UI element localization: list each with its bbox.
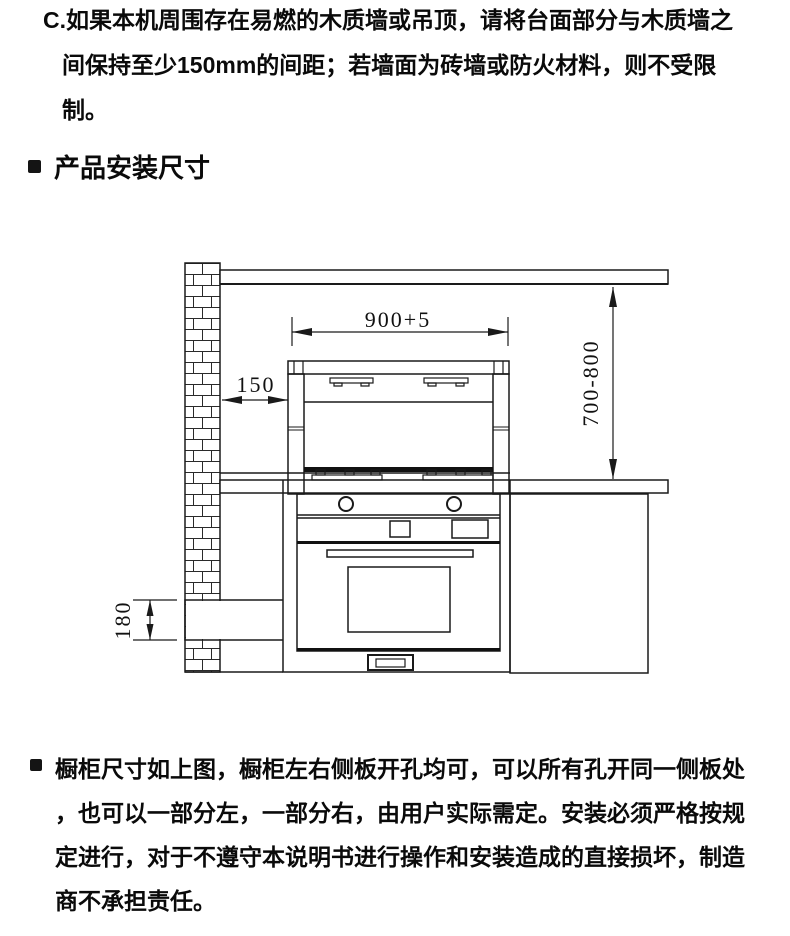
oven-door-handle	[327, 550, 473, 557]
dim-base-height-label: 180	[110, 601, 135, 640]
intro-line-2: 间保持至少150mm的间距；若墙面为砖墙或防火材料，则不受限	[0, 43, 790, 88]
footer-paragraph: 橱柜尺寸如上图，橱柜左右侧板开孔均可，可以所有孔开同一侧板处 ，也可以一部分左，…	[0, 747, 790, 923]
square-bullet-icon	[28, 160, 41, 173]
hood-vent-slots	[330, 378, 468, 386]
dim-wall-gap-label: 150	[237, 372, 276, 397]
section-heading-label: 产品安装尺寸	[54, 148, 210, 185]
dimension-width: 900+5	[292, 307, 508, 346]
dim-width-label: 900+5	[365, 307, 431, 332]
intro-line-1: C.如果本机周围存在易燃的木质墙或吊顶，请将台面部分与木质墙之	[0, 0, 790, 43]
display-window-large	[452, 520, 488, 538]
intro-paragraph: C.如果本机周围存在易燃的木质墙或吊顶，请将台面部分与木质墙之 间保持至少150…	[0, 0, 790, 133]
control-knob-left	[339, 497, 353, 511]
upper-cabinet-panel	[220, 270, 668, 284]
hood-unit	[288, 361, 509, 494]
square-bullet-icon	[30, 759, 42, 771]
section-heading: 产品安装尺寸	[28, 148, 210, 185]
dimension-wall-gap: 150	[222, 372, 288, 404]
installation-dimensions-drawing: 900+5 150 700-800 180	[0, 230, 790, 710]
intro-line-3: 制。	[0, 88, 790, 133]
right-base-cabinet	[510, 494, 648, 673]
lower-oven-cabinet	[283, 480, 510, 672]
dimension-height: 700-800	[578, 287, 617, 479]
control-knob-right	[447, 497, 461, 511]
footer-line-1: 橱柜尺寸如上图，橱柜左右侧板开孔均可，可以所有孔开同一侧板处	[0, 747, 790, 791]
dimension-base-height: 180	[110, 600, 177, 640]
dim-height-label: 700-800	[578, 339, 603, 426]
countertop	[220, 473, 668, 493]
display-window-small	[390, 521, 410, 537]
footer-line-3: 定进行，对于不遵守本说明书进行操作和安装造成的直接损坏，制造	[0, 835, 790, 879]
footer-line-2: ，也可以一部分左，一部分右，由用户实际需定。安装必须严格按规	[0, 791, 790, 835]
drawer-handle	[368, 655, 413, 670]
brick-wall	[185, 263, 283, 672]
footer-line-4: 商不承担责任。	[0, 879, 790, 923]
oven-door-window	[348, 567, 450, 632]
